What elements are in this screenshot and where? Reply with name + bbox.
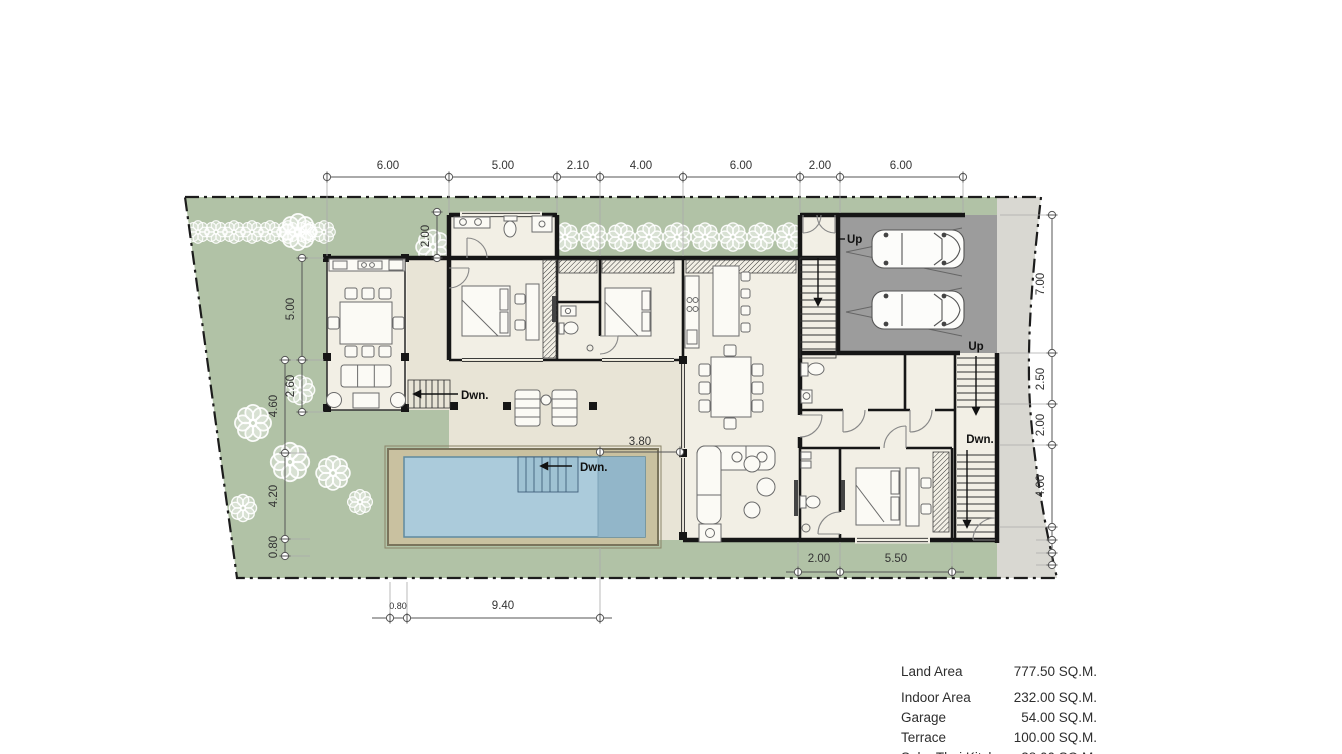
label-down-stairs: Dwn.	[966, 434, 993, 446]
dim-bottom-left-2: 9.40	[492, 600, 514, 612]
driveway-area	[997, 197, 1057, 578]
dim-left-outer-1: 4.60	[268, 395, 280, 417]
dim-left-outer-2: 4.20	[268, 485, 280, 507]
area-summary-table: Land Area 777.50 SQ.M. Indoor Area 232.0…	[901, 664, 1097, 754]
car-2	[872, 291, 964, 329]
pool-steps	[518, 457, 578, 492]
dim-left-outer-3: 0.80	[268, 536, 280, 558]
area-row-land: Land Area 777.50 SQ.M.	[901, 664, 1097, 681]
dim-top-5: 6.00	[730, 160, 752, 172]
dim-bottom-mid-1: 2.00	[808, 553, 830, 565]
area-row-garage: Garage 54.00 SQ.M.	[901, 710, 1097, 727]
dim-top-7: 6.00	[890, 160, 912, 172]
area-label: Terrace	[901, 730, 946, 747]
dim-right-1: 7.00	[1035, 273, 1047, 295]
area-label: Sala+Thai Kitchen	[901, 750, 1011, 754]
dim-top-3: 2.10	[567, 160, 589, 172]
dim-right-3: 2.00	[1035, 414, 1047, 436]
dim-left-inner-2: 2.60	[285, 375, 297, 397]
car-1	[872, 230, 964, 268]
dim-bottom-left-1: 0.80	[389, 601, 407, 611]
dim-left-inner-1: 5.00	[285, 298, 297, 320]
area-value: 777.50 SQ.M.	[1014, 664, 1097, 681]
label-down-sala: Dwn.	[461, 390, 488, 402]
area-row-indoor: Indoor Area 232.00 SQ.M.	[901, 690, 1097, 707]
dim-top-4: 4.00	[630, 160, 652, 172]
area-label: Garage	[901, 710, 946, 727]
dim-right-4: 4.00	[1035, 475, 1047, 497]
swimming-pool	[385, 446, 661, 548]
dim-upper-small: 2.00	[420, 225, 432, 247]
area-row-sala: Sala+Thai Kitchen 38.00 SQ.M.	[901, 750, 1097, 754]
label-down-pool: Dwn.	[580, 462, 607, 474]
dim-top-1: 6.00	[377, 160, 399, 172]
area-value: 38.00 SQ.M.	[1021, 750, 1097, 754]
label-up-garage: Up	[847, 234, 862, 246]
bedroom2-furniture	[605, 288, 651, 336]
area-value: 54.00 SQ.M.	[1021, 710, 1097, 727]
area-value: 100.00 SQ.M.	[1014, 730, 1097, 747]
area-value: 232.00 SQ.M.	[1014, 690, 1097, 707]
floor-plan-page: 6.00 5.00 2.10 4.00 6.00 2.00 6.00 5.00 …	[0, 0, 1342, 754]
area-row-terrace: Terrace 100.00 SQ.M.	[901, 730, 1097, 747]
label-up-stairs: Up	[968, 341, 983, 353]
sala-kitchen-counter	[329, 259, 405, 271]
floor-plan-canvas: 6.00 5.00 2.10 4.00 6.00 2.00 6.00 5.00 …	[0, 0, 1342, 754]
dim-top-2: 5.00	[492, 160, 514, 172]
dim-terrace: 3.80	[629, 436, 651, 448]
area-label: Indoor Area	[901, 690, 971, 707]
dim-top-6: 2.00	[809, 160, 831, 172]
dim-right-2: 2.50	[1035, 368, 1047, 390]
dim-bottom-mid-2: 5.50	[885, 553, 907, 565]
area-label: Land Area	[901, 664, 963, 681]
